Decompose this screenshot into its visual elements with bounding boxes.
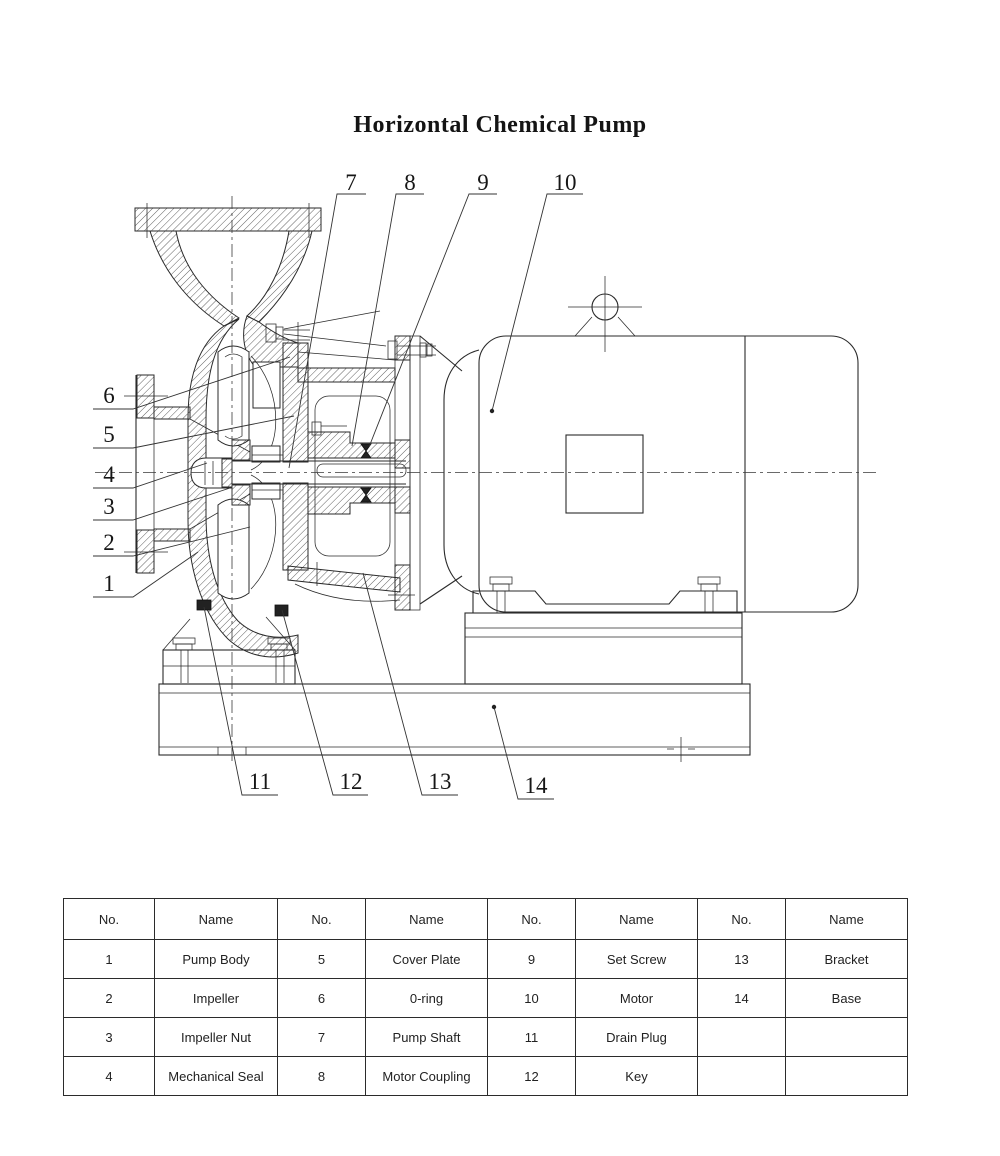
part-number-cell: 1 [64,940,155,979]
part-name-cell: Set Screw [576,940,698,979]
motor-adapter [420,336,479,604]
motor-foot-plate [473,591,737,613]
table-row: 3Impeller Nut7Pump Shaft11Drain Plug [64,1018,908,1057]
part-number-cell: 7 [278,1018,366,1057]
key-mark [275,605,288,616]
part-number-cell: 10 [488,979,576,1018]
part-name-cell: 0-ring [366,979,488,1018]
motor-foot-bolt-right [698,577,720,613]
foot-bolt-left [173,638,195,683]
part-name-cell: Pump Body [155,940,278,979]
part-name-cell: Motor [576,979,698,1018]
part-name-cell: Motor Coupling [366,1057,488,1096]
part-name-cell: Drain Plug [576,1018,698,1057]
part-name-cell [786,1018,908,1057]
motor [473,276,858,613]
part-name-cell: Bracket [786,940,908,979]
parts-table-container: No. Name No. Name No. Name No. Name 1Pum… [63,898,908,1096]
callout-number: 1 [103,571,115,596]
impeller-nut [191,458,232,488]
part-number-cell: 2 [64,979,155,1018]
motor-mount-block [465,613,742,684]
part-number-cell: 4 [64,1057,155,1096]
column-header: No. [488,899,576,940]
callout-10: 10 [490,170,583,413]
part-number-cell [698,1018,786,1057]
part-number-cell: 3 [64,1018,155,1057]
part-name-cell: Base [786,979,908,1018]
table-header-row: No. Name No. Name No. Name No. Name [64,899,908,940]
part-number-cell: 6 [278,979,366,1018]
callout-number: 14 [525,773,549,798]
table-row: 1Pump Body5Cover Plate9Set Screw13Bracke… [64,940,908,979]
part-number-cell: 9 [488,940,576,979]
table-row: 4Mechanical Seal8Motor Coupling12Key [64,1057,908,1096]
part-name-cell: Cover Plate [366,940,488,979]
callout-number: 7 [345,170,357,195]
page: Horizontal Chemical Pump [0,0,1000,1156]
discharge-flange [135,203,321,326]
callout-3: 3 [93,488,230,520]
motor-nameplate [566,435,643,513]
callout-number: 11 [249,769,271,794]
part-name-cell: Mechanical Seal [155,1057,278,1096]
column-header: No. [278,899,366,940]
part-number-cell: 8 [278,1057,366,1096]
part-name-cell: Pump Shaft [366,1018,488,1057]
column-header: Name [155,899,278,940]
table-row: 2Impeller60-ring10Motor14Base [64,979,908,1018]
column-header: Name [576,899,698,940]
lifting-eye [568,276,642,352]
callout-8: 8 [352,170,424,446]
callout-number: 8 [404,170,416,195]
base-plate [159,684,750,762]
parts-table-body: 1Pump Body5Cover Plate9Set Screw13Bracke… [64,940,908,1096]
callout-9: 9 [369,170,497,447]
callout-number: 6 [103,383,115,408]
callout-number: 2 [103,530,115,555]
callout-number: 3 [103,494,115,519]
part-number-cell: 13 [698,940,786,979]
callout-number: 9 [477,170,489,195]
column-header: No. [698,899,786,940]
callout-number: 10 [554,170,577,195]
column-header: Name [366,899,488,940]
bracket [288,336,420,610]
column-header: No. [64,899,155,940]
column-header: Name [786,899,908,940]
part-name-cell [786,1057,908,1096]
callout-number: 13 [429,769,452,794]
callout-number: 4 [103,462,115,487]
part-number-cell: 14 [698,979,786,1018]
part-name-cell: Impeller [155,979,278,1018]
callout-14: 14 [492,705,554,799]
parts-table: No. Name No. Name No. Name No. Name 1Pum… [63,898,908,1096]
motor-coupling [308,432,395,514]
part-name-cell: Key [576,1057,698,1096]
motor-foot-bolt-left [490,577,512,613]
part-number-cell [698,1057,786,1096]
pump-diagram: 7891065432111121314 [0,0,1000,870]
part-number-cell: 11 [488,1018,576,1057]
part-number-cell: 5 [278,940,366,979]
part-number-cell: 12 [488,1057,576,1096]
part-name-cell: Impeller Nut [155,1018,278,1057]
callout-number: 5 [103,422,115,447]
callout-number: 12 [340,769,363,794]
